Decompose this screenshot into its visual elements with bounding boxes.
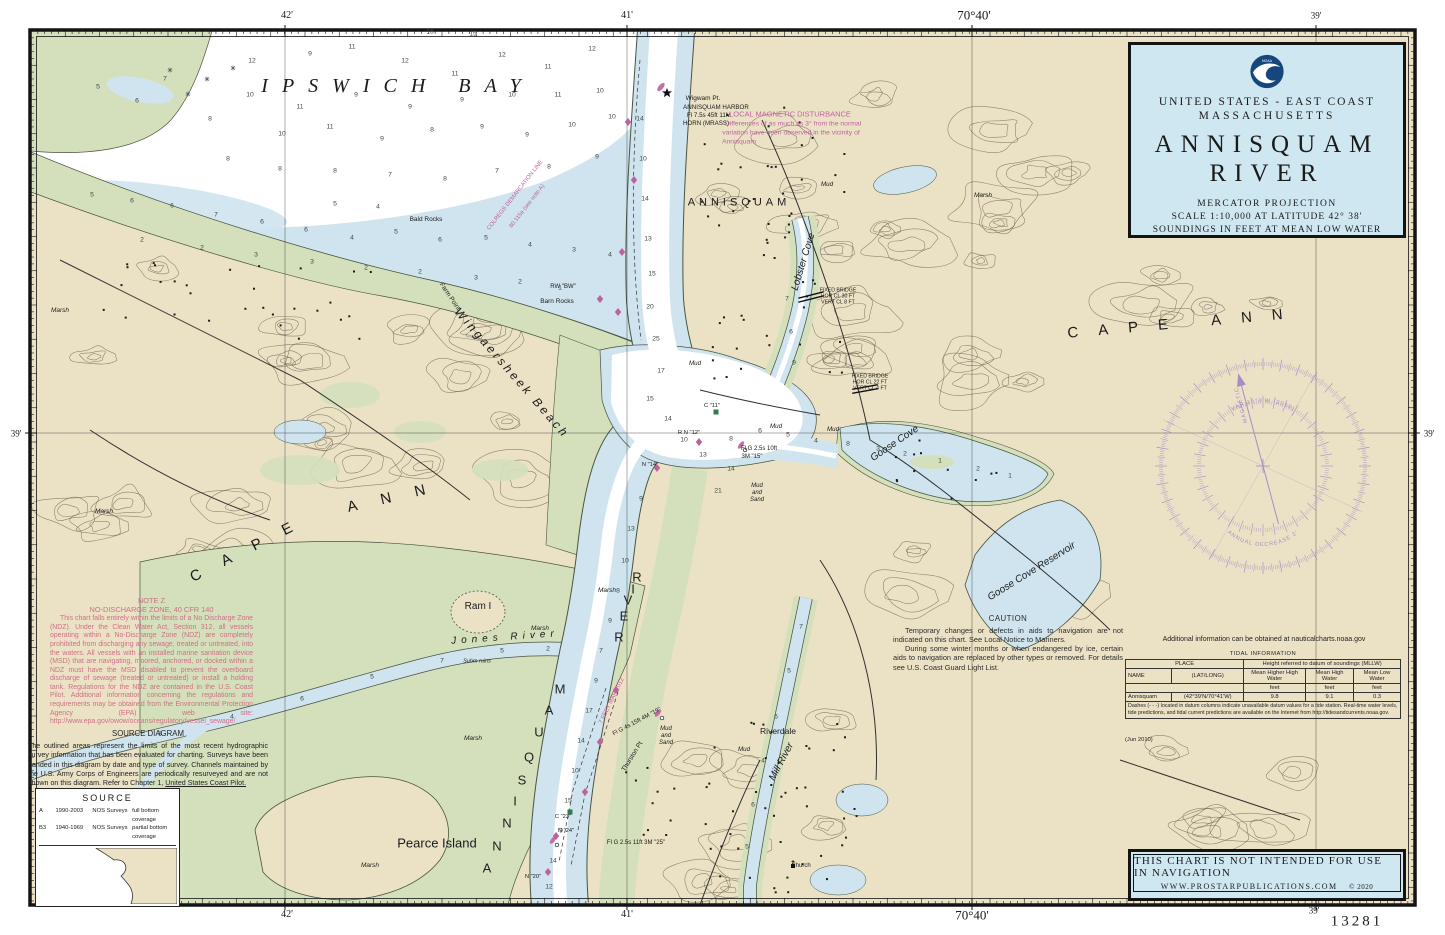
source-row-code: B3: [39, 824, 55, 841]
tidal-footnote: Dashes (- - -) located in datum columns …: [1126, 702, 1401, 719]
tidal-col-latlong: (LAT/LONG): [1172, 669, 1244, 684]
dune-patch: [394, 421, 446, 443]
title-scale: SCALE 1:10,000 AT LATITUDE 42° 38': [1172, 212, 1363, 222]
goose-cove-islet: [910, 455, 954, 469]
caution-paragraph-2: During some winter months or when endang…: [893, 644, 1123, 672]
dune-patch: [472, 459, 528, 481]
additional-info-note: Additional information can be obtained a…: [1130, 636, 1398, 643]
can-symbol: [714, 410, 719, 415]
pond: [836, 784, 888, 816]
nautical-chart-page: MAGNETIC VAR 15°0'W (2010) ANNUAL DECREA…: [0, 0, 1445, 935]
tidal-col-name: NAME: [1126, 669, 1172, 684]
tidal-row-annisquam: Annisquam (42°39'N/70°41'W) 9.8 9.1 0.3: [1126, 693, 1401, 702]
tidal-date: (Jun 2010): [1125, 737, 1153, 743]
tidal-col-height: Height referred to datum of soundings (M…: [1244, 660, 1401, 669]
title-state: MASSACHUSETTS: [1199, 110, 1336, 122]
tidal-unit: feet: [1306, 684, 1354, 693]
source-legend-row: A 1990-2003 NOS Surveys full bottom cove…: [39, 807, 176, 824]
source-row-code: A: [39, 807, 55, 824]
rock-symbol: [186, 92, 191, 97]
caution-title: CAUTION: [893, 614, 1123, 624]
tidal-information-table: PLACE Height referred to datum of soundi…: [1125, 659, 1401, 719]
tidal-mlw-value: 0.3: [1353, 693, 1400, 702]
source-legend-title: SOURCE: [36, 793, 179, 803]
tidal-unit-spacer: [1126, 684, 1244, 693]
tidal-unit: feet: [1244, 684, 1306, 693]
chart-title-line2: RIVER: [1210, 160, 1325, 188]
dune-patch: [320, 382, 380, 408]
source-legend-row: B3 1940-1969 NOS Surveys partial bottom …: [39, 824, 176, 841]
tidal-table-caption: TIDAL INFORMATION: [1125, 651, 1401, 657]
warning-copyright: © 2020: [1349, 883, 1373, 891]
tidal-station-name: Annisquam: [1126, 693, 1172, 702]
tidal-station-latlong: (42°39'N/70°41'W): [1172, 693, 1244, 702]
source-row-years: 1990-2003: [55, 807, 92, 824]
note-z: NOTE Z NO-DISCHARGE ZONE, 40 CFR 140 Thi…: [50, 596, 253, 727]
source-diagram-note: SOURCE DIAGRAM The outlined areas repres…: [28, 729, 268, 788]
source-row-coverage: full bottom coverage: [132, 807, 176, 824]
source-row-src: NOS Surveys: [92, 824, 132, 841]
navigation-warning-box: THIS CHART IS NOT INTENDED FOR USE IN NA…: [1128, 849, 1406, 901]
chart-title-block: NOAA UNITED STATES - EAST COAST MASSACHU…: [1128, 42, 1406, 238]
tidal-unit: feet: [1353, 684, 1400, 693]
tidal-mhhw-value: 9.8: [1244, 693, 1306, 702]
note-z-body: This chart falls entirely within the lim…: [50, 615, 253, 726]
tidal-col-mhhw: Mean Higher High Water: [1244, 669, 1306, 684]
tidal-col-place: PLACE: [1126, 660, 1244, 669]
rock-symbol: [168, 68, 173, 73]
chart-title-line1: ANNISQUAM: [1155, 131, 1380, 159]
caution-paragraph-1: Temporary changes or defects in aids to …: [893, 626, 1123, 645]
note-z-subtitle: NO-DISCHARGE ZONE, 40 CFR 140: [50, 605, 253, 614]
source-row-years: 1940-1969: [55, 824, 92, 841]
pond: [274, 420, 326, 444]
can-symbol: [568, 810, 573, 815]
rock-symbol: [231, 66, 236, 71]
source-mini-map: [36, 848, 177, 904]
tidal-mhw-value: 9.1: [1306, 693, 1354, 702]
svg-text:NOAA: NOAA: [1262, 59, 1273, 63]
title-country: UNITED STATES - EAST COAST: [1159, 96, 1375, 108]
rock-symbol: [205, 77, 210, 82]
source-row-src: NOS Surveys: [92, 807, 132, 824]
title-soundings-note: SOUNDINGS IN FEET AT MEAN LOW WATER: [1153, 225, 1382, 235]
church-icon: [791, 860, 795, 868]
tidal-col-mhw: Mean High Water: [1306, 669, 1354, 684]
pond: [810, 865, 866, 895]
title-projection: MERCATOR PROJECTION: [1197, 199, 1336, 209]
warning-line1: THIS CHART IS NOT INTENDED FOR USE IN NA…: [1134, 855, 1400, 879]
noaa-logo-icon: NOAA: [1247, 54, 1287, 89]
source-diagram-ref: United States Coast Pilot.: [165, 779, 246, 787]
dune-patch: [260, 455, 340, 485]
note-z-title: NOTE Z: [50, 596, 253, 605]
source-diagram-box: SOURCE A 1990-2003 NOS Surveys full bott…: [35, 788, 180, 907]
caution-note: CAUTION Temporary changes or defects in …: [893, 614, 1123, 672]
source-row-coverage: partial bottom coverage: [132, 824, 176, 841]
ram-island: [451, 591, 505, 633]
tidal-col-mlw: Mean Low Water: [1353, 669, 1400, 684]
warning-url: WWW.PROSTARPUBLICATIONS.COM: [1161, 882, 1338, 891]
source-diagram-title: SOURCE DIAGRAM: [28, 729, 268, 739]
